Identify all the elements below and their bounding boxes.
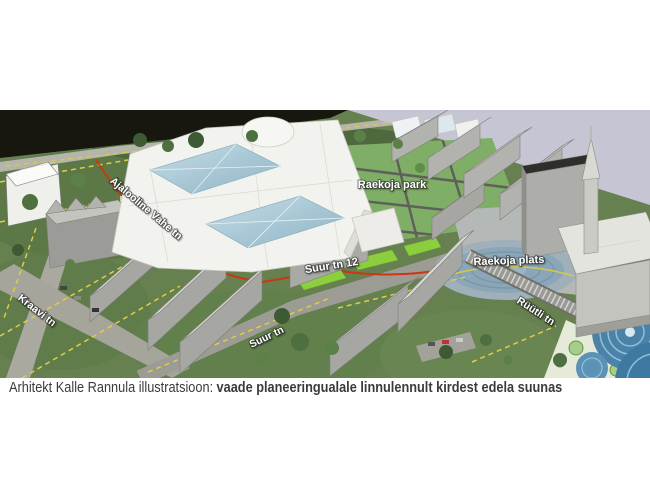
aerial-3d-render: Ajalooline Vahe tn Kraavi tn Suur tn 12 … [0, 110, 650, 378]
label-raekoja-park: Raekoja park [358, 179, 427, 191]
illustration-page: Ajalooline Vahe tn Kraavi tn Suur tn 12 … [0, 0, 650, 487]
caption-emphasis: vaade planeeringualale linnulennult kird… [217, 379, 563, 396]
tower [584, 174, 598, 254]
label-raekoja-plats: Raekoja plats [473, 254, 544, 268]
caption-prefix: Arhitekt Kalle Rannula illustratsioon: [9, 379, 213, 396]
caption: Arhitekt Kalle Rannula illustratsioon:va… [9, 379, 562, 396]
